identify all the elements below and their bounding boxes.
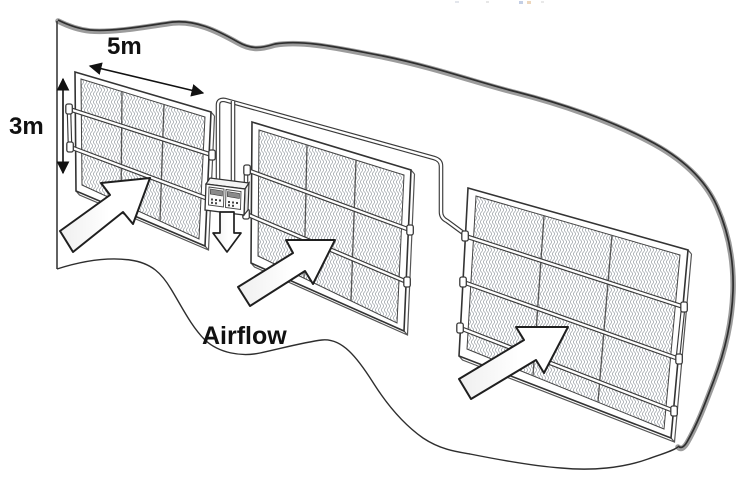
mesh-panel-3 [457, 188, 692, 442]
control-unit [205, 178, 249, 215]
down-arrow-icon [213, 212, 241, 252]
height-label: 3m [9, 113, 44, 140]
mesh-panel-2 [243, 122, 415, 335]
cropped-text-artifact [455, 1, 544, 4]
width-label: 5m [107, 33, 142, 60]
airflow-arrow-icon-1 [60, 178, 150, 252]
airflow-label: Airflow [202, 322, 287, 350]
diagram-page: 5m 3m Airflow [0, 0, 739, 497]
mesh-panel-airflow-diagram: 5m 3m Airflow [0, 0, 739, 497]
